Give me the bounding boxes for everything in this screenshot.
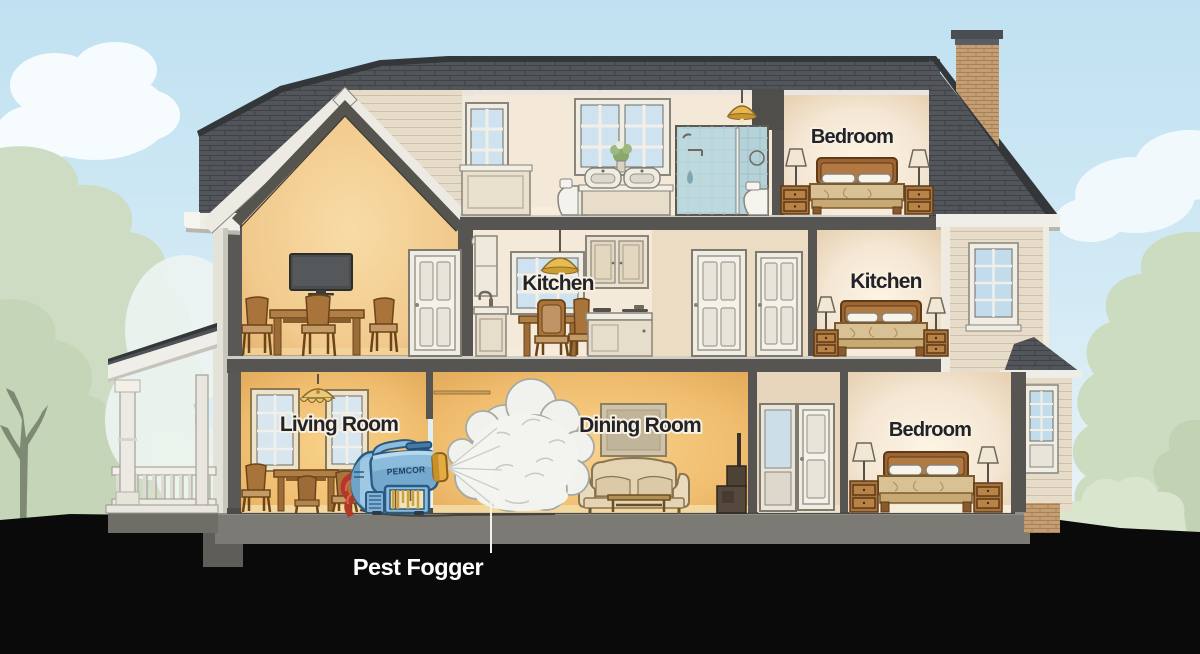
svg-text:Kitchen: Kitchen bbox=[850, 270, 921, 293]
svg-text:Living Room: Living Room bbox=[280, 413, 398, 436]
svg-text:Dining Room: Dining Room bbox=[579, 414, 701, 437]
svg-text:Kitchen: Kitchen bbox=[522, 272, 593, 295]
svg-text:Bedroom: Bedroom bbox=[811, 126, 893, 148]
svg-text:Pest Fogger: Pest Fogger bbox=[353, 554, 484, 580]
svg-text:Bedroom: Bedroom bbox=[889, 419, 971, 441]
